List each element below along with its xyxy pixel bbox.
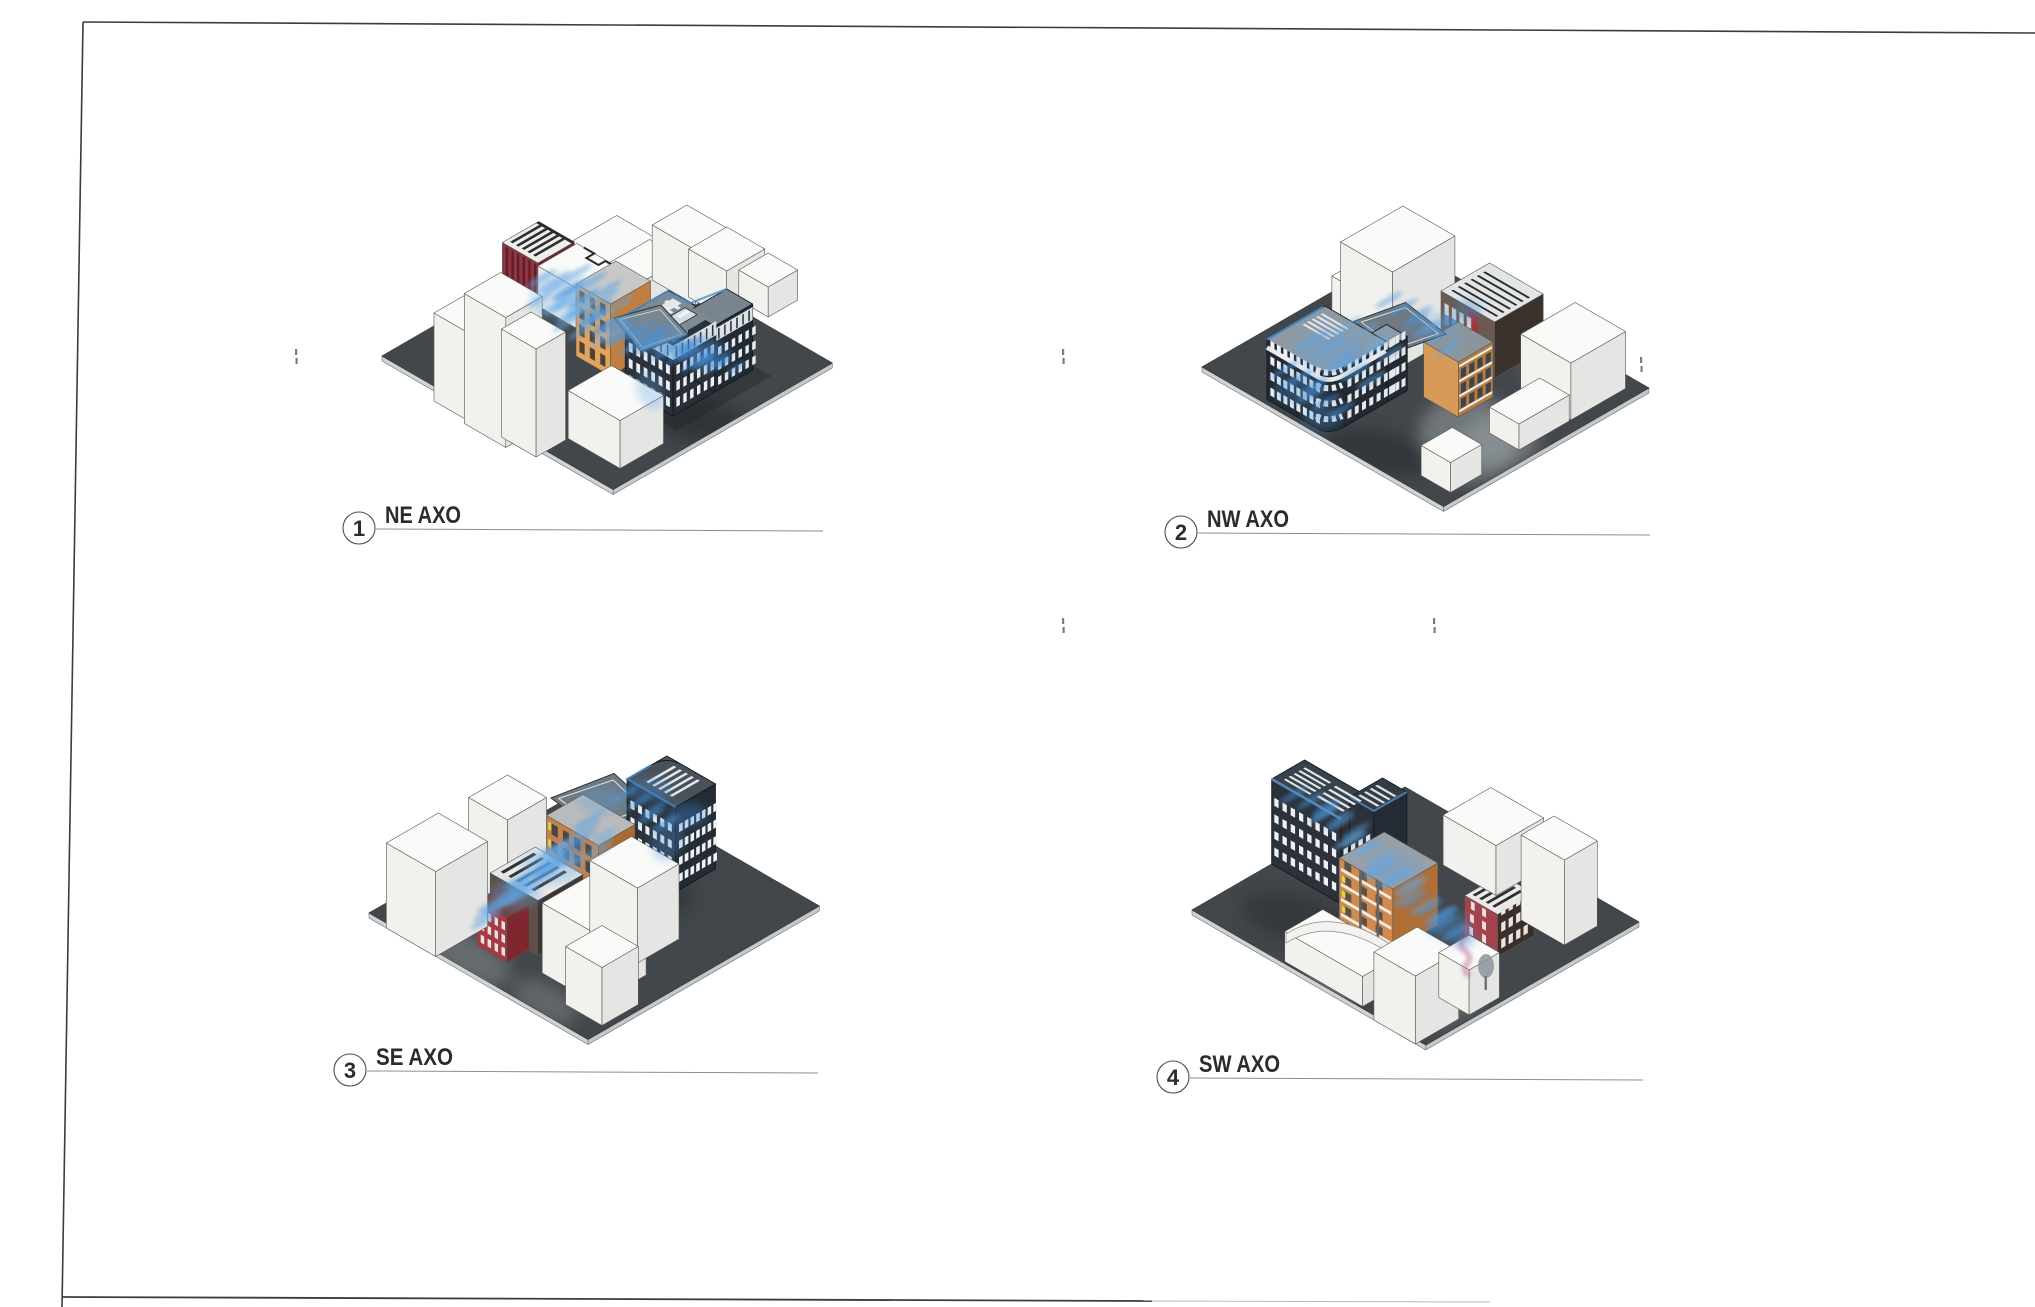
svg-text:SE AXO: SE AXO [376, 1044, 453, 1071]
svg-text:3: 3 [344, 1058, 356, 1083]
svg-text:2: 2 [1175, 520, 1187, 545]
svg-text:1: 1 [353, 516, 365, 541]
svg-text:NW AXO: NW AXO [1207, 506, 1289, 533]
svg-text:SW AXO: SW AXO [1199, 1051, 1280, 1078]
svg-text:NE AXO: NE AXO [385, 502, 461, 529]
svg-text:4: 4 [1167, 1065, 1180, 1090]
